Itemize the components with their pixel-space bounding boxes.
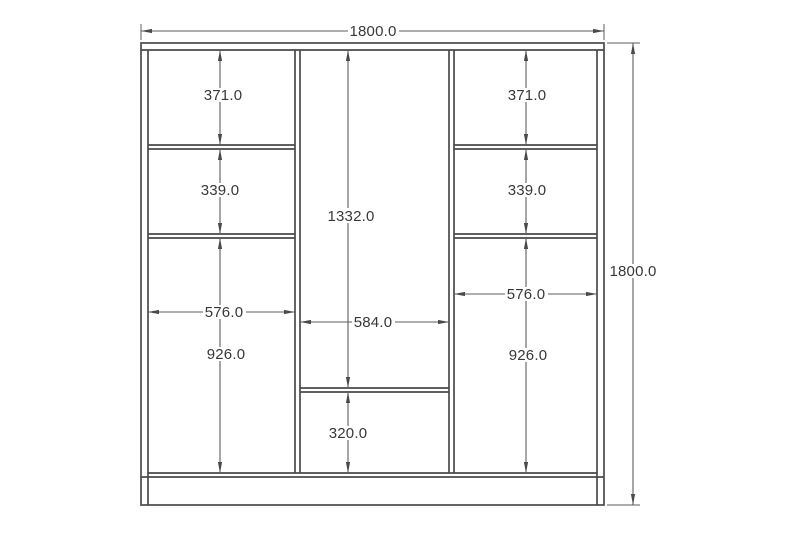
dimension-labels: 1800.0 1800.0 371.0 371.0 339.0 339.0 xyxy=(199,23,659,442)
dim-label: 371.0 xyxy=(204,87,243,104)
label-center-width: 584.0 xyxy=(352,314,395,331)
dim-label: 339.0 xyxy=(508,182,547,199)
left-lower-shelf xyxy=(148,234,295,238)
technical-drawing-canvas: 1800.0 1800.0 371.0 371.0 339.0 339.0 xyxy=(0,0,800,533)
dim-label: 320.0 xyxy=(329,425,368,442)
dim-label: 576.0 xyxy=(507,286,546,303)
label-right-top: 371.0 xyxy=(506,87,549,104)
label-overall-width: 1800.0 xyxy=(348,23,399,40)
label-right-lower: 926.0 xyxy=(507,347,550,364)
left-divider xyxy=(295,50,300,473)
right-lower-shelf xyxy=(454,234,597,238)
label-right-middle: 339.0 xyxy=(506,182,549,199)
label-overall-height: 1800.0 xyxy=(608,263,659,280)
dim-label: 1332.0 xyxy=(327,208,374,225)
dim-label: 1800.0 xyxy=(609,263,656,280)
label-left-top: 371.0 xyxy=(202,87,245,104)
dim-label: 339.0 xyxy=(201,182,240,199)
bottom-panel xyxy=(141,473,604,477)
dim-label: 576.0 xyxy=(205,304,244,321)
wardrobe-dimension-diagram: 1800.0 1800.0 371.0 371.0 339.0 339.0 xyxy=(0,0,800,533)
dim-label: 584.0 xyxy=(354,314,393,331)
label-center-lower: 320.0 xyxy=(327,425,370,442)
dim-label: 926.0 xyxy=(509,347,548,364)
cabinet-outline xyxy=(141,43,604,505)
label-left-middle: 339.0 xyxy=(199,182,242,199)
dim-label: 371.0 xyxy=(508,87,547,104)
label-right-width: 576.0 xyxy=(505,286,548,303)
label-left-width: 576.0 xyxy=(203,304,246,321)
label-left-lower: 926.0 xyxy=(205,346,248,363)
dim-label: 1800.0 xyxy=(349,23,396,40)
right-divider xyxy=(449,50,454,473)
dim-label: 926.0 xyxy=(207,346,246,363)
right-upper-shelf xyxy=(454,145,597,149)
cabinet-structure xyxy=(141,43,604,505)
center-shelf xyxy=(300,388,449,392)
label-center-upper: 1332.0 xyxy=(325,208,378,225)
left-upper-shelf xyxy=(148,145,295,149)
